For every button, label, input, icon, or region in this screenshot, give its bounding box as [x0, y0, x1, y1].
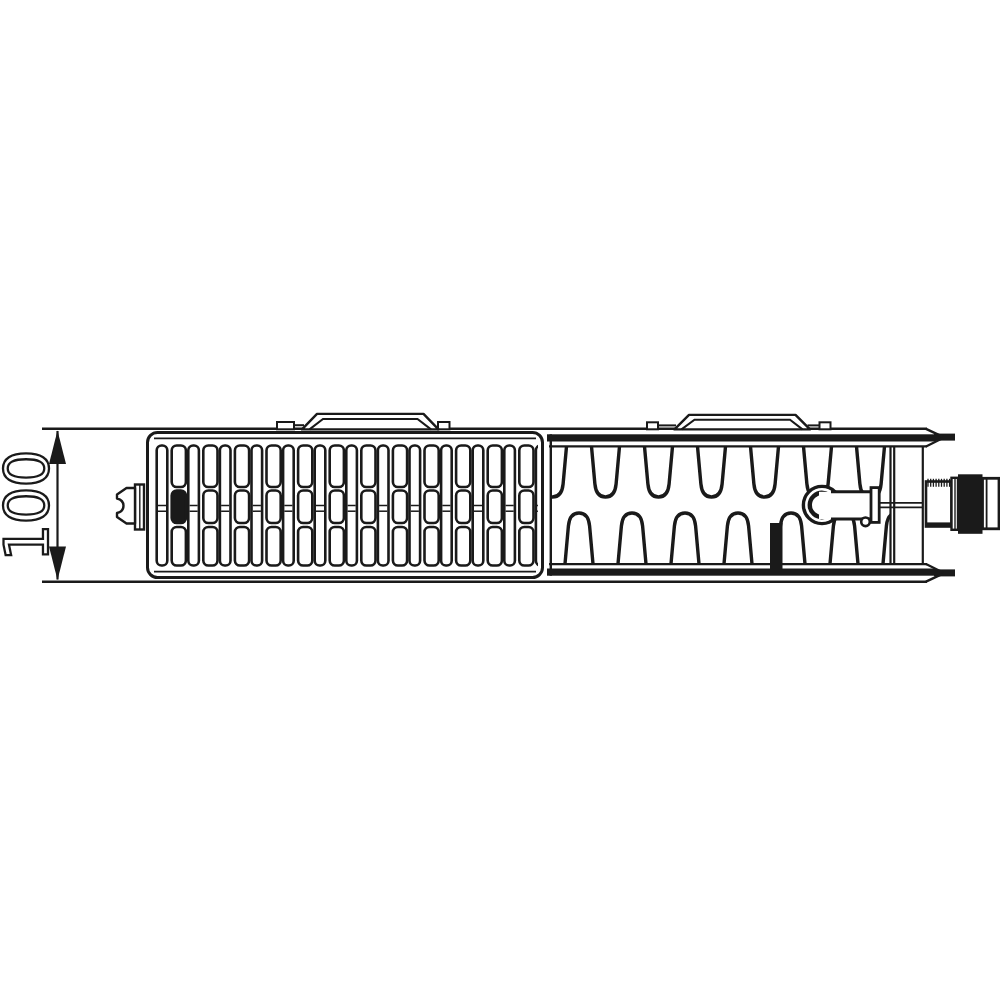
drawing-canvas: 100 — [0, 0, 1000, 1000]
mounting-brackets — [277, 414, 831, 430]
connection-fitting — [926, 474, 999, 534]
left-plug-cap — [117, 485, 144, 530]
valve-assembly — [803, 486, 923, 526]
fin-detail-mark — [770, 523, 783, 570]
dimension-label: 100 — [0, 450, 62, 562]
dimension-annotation: 100 — [0, 431, 66, 581]
radiator-technical-drawing: 100 — [0, 0, 1000, 1000]
